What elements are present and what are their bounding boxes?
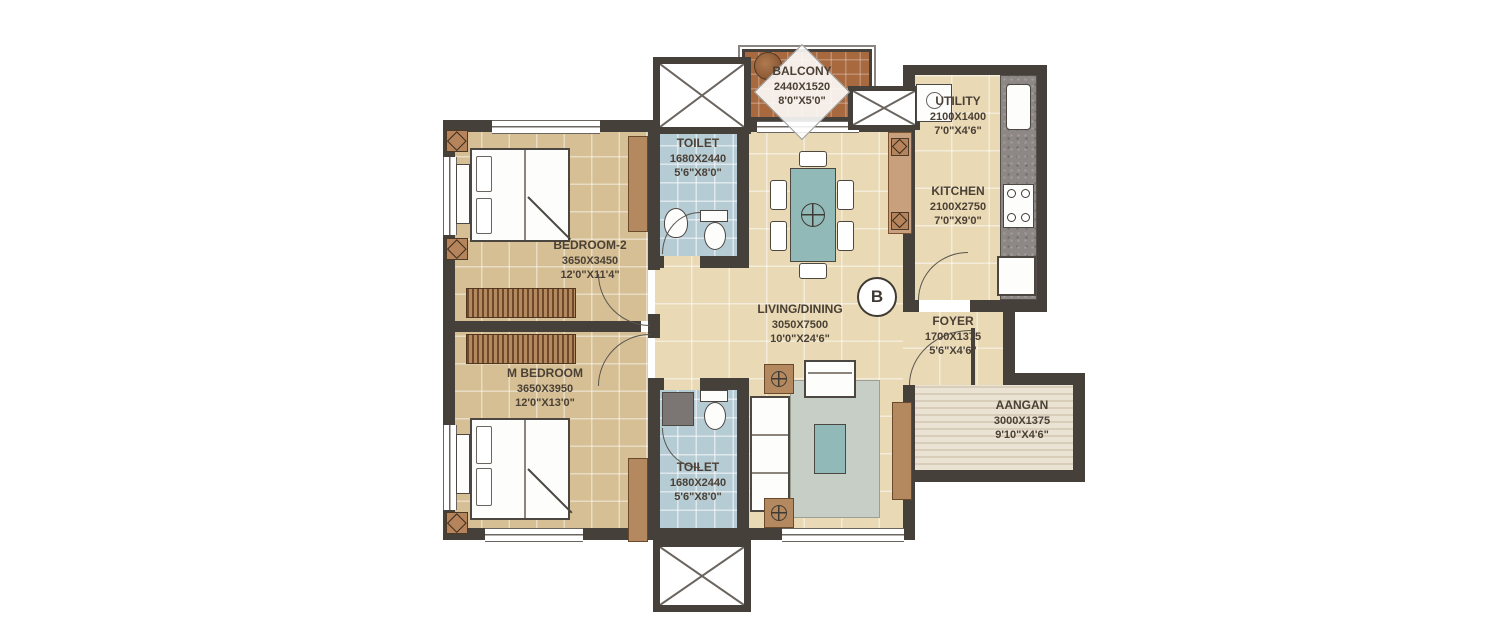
room-dims-mm: 3650X3950	[480, 382, 610, 396]
toilet-top-label: TOILET 1680X2440 5'6"X8'0"	[633, 136, 763, 180]
dining-chair	[799, 263, 827, 279]
mbedroom-bed-sheetline	[524, 420, 526, 518]
room-dims-ft: 9'10"X4'6"	[957, 428, 1087, 442]
balcony-label: BALCONY 2440X1520 8'0"X5'0"	[737, 64, 867, 108]
wall-kitchen-bottom-b	[970, 300, 1047, 312]
room-dims-ft: 10'0"X24'6"	[735, 332, 865, 346]
side-table-lamp-icon	[771, 371, 787, 387]
utility-label: UTILITY 2100X1400 7'0"X4'6"	[893, 94, 1023, 138]
living-dining-label: LIVING/DINING 3050X7500 10'0"X24'6"	[735, 302, 865, 346]
mbedroom-pillow-2	[476, 468, 492, 506]
wall-toilet-bottom-top-a	[648, 378, 664, 390]
window-mbedroom-left	[443, 425, 457, 510]
room-name: FOYER	[888, 314, 1018, 330]
wall-bedroom-divider	[443, 321, 641, 332]
window-bedroom2-top	[492, 120, 600, 134]
ceiling-fan-icon	[801, 203, 825, 227]
dining-chair	[770, 221, 787, 251]
room-dims-mm: 1680X2440	[633, 152, 763, 166]
mbedroom-nightstand	[456, 434, 470, 494]
dining-chair	[799, 151, 827, 167]
room-dims-ft: 5'6"X4'6"	[888, 344, 1018, 358]
aangan-label: AANGAN 3000X1375 9'10"X4'6"	[957, 398, 1087, 442]
sofa-cushion-line	[752, 434, 788, 436]
mbedroom-pillow-1	[476, 426, 492, 464]
room-dims-ft: 12'0"X13'0"	[480, 396, 610, 410]
bedroom2-wardrobe	[466, 288, 576, 318]
duct-shaft-bottom	[653, 540, 751, 612]
wall-kitchen-bottom-a	[903, 300, 919, 312]
wall-aangan-bottom	[915, 470, 1073, 482]
room-name: BALCONY	[737, 64, 867, 80]
room-name: LIVING/DINING	[735, 302, 865, 318]
toilet-top-wc-bowl	[704, 222, 726, 250]
kitchen-label: KITCHEN 2100X2750 7'0"X9'0"	[893, 184, 1023, 228]
room-dims-ft: 7'0"X9'0"	[893, 214, 1023, 228]
toilet-bottom-label: TOILET 1680X2440 5'6"X8'0"	[633, 460, 763, 504]
room-name: BEDROOM-2	[525, 238, 655, 254]
electrical-point-icon	[446, 238, 468, 260]
wall-toilet-bottom-right	[737, 378, 749, 540]
side-table-lamp-icon	[771, 505, 787, 521]
coffee-table	[814, 424, 846, 474]
toilet-bottom-wc-tank	[700, 390, 728, 402]
dining-chair	[837, 221, 854, 251]
mbedroom-wardrobe	[466, 334, 576, 364]
room-name: KITCHEN	[893, 184, 1023, 200]
room-name: M BEDROOM	[480, 366, 610, 382]
room-name: TOILET	[633, 136, 763, 152]
room-dims-ft: 12'0"X11'4"	[525, 268, 655, 282]
room-dims-mm: 3050X7500	[735, 318, 865, 332]
tv-unit	[892, 402, 912, 500]
wall-utility-top	[903, 65, 1047, 75]
toilet-bottom-wc-bowl	[704, 402, 726, 430]
room-dims-mm: 1700X1375	[888, 330, 1018, 344]
room-dims-mm: 3000X1375	[957, 414, 1087, 428]
dining-chair	[837, 180, 854, 210]
room-dims-ft: 8'0"X5'0"	[737, 94, 867, 108]
dining-chair	[770, 180, 787, 210]
window-living-bottom	[782, 528, 904, 542]
toilet-top-wc-tank	[700, 210, 728, 222]
bedroom2-nightstand	[456, 164, 470, 224]
electrical-point-icon	[446, 512, 468, 534]
armchair	[804, 360, 856, 398]
armchair-cushion-line	[808, 372, 852, 374]
unit-badge: B	[857, 277, 897, 317]
electrical-point-icon	[891, 138, 909, 156]
room-dims-mm: 2440X1520	[737, 80, 867, 94]
window-mbedroom-bottom	[485, 528, 583, 542]
refrigerator	[997, 256, 1036, 296]
toilet-bottom-shower	[662, 392, 694, 426]
room-dims-ft: 5'6"X8'0"	[633, 166, 763, 180]
room-dims-ft: 7'0"X4'6"	[893, 124, 1023, 138]
bedroom2-pillow-1	[476, 156, 492, 192]
electrical-point-icon	[446, 130, 468, 152]
room-dims-mm: 3650X3450	[525, 254, 655, 268]
room-name: UTILITY	[893, 94, 1023, 110]
room-dims-ft: 5'6"X8'0"	[633, 490, 763, 504]
wall-toilet-top-bottom-b	[700, 256, 749, 268]
bedroom2-pillow-2	[476, 198, 492, 234]
foyer-label: FOYER 1700X1375 5'6"X4'6"	[888, 314, 1018, 358]
room-name: TOILET	[633, 460, 763, 476]
room-dims-mm: 2100X1400	[893, 110, 1023, 124]
window-bedroom2-left	[443, 157, 457, 235]
bedroom2-bed-sheetline	[524, 150, 526, 240]
mbedroom-label: M BEDROOM 3650X3950 12'0"X13'0"	[480, 366, 610, 410]
room-dims-mm: 2100X2750	[893, 200, 1023, 214]
floor-plan: BEDROOM-2 3650X3450 12'0"X11'4" M BEDROO…	[0, 0, 1500, 625]
wall-right-outer	[1037, 65, 1047, 312]
room-name: AANGAN	[957, 398, 1087, 414]
room-dims-mm: 1680X2440	[633, 476, 763, 490]
bedroom2-label: BEDROOM-2 3650X3450 12'0"X11'4"	[525, 238, 655, 282]
